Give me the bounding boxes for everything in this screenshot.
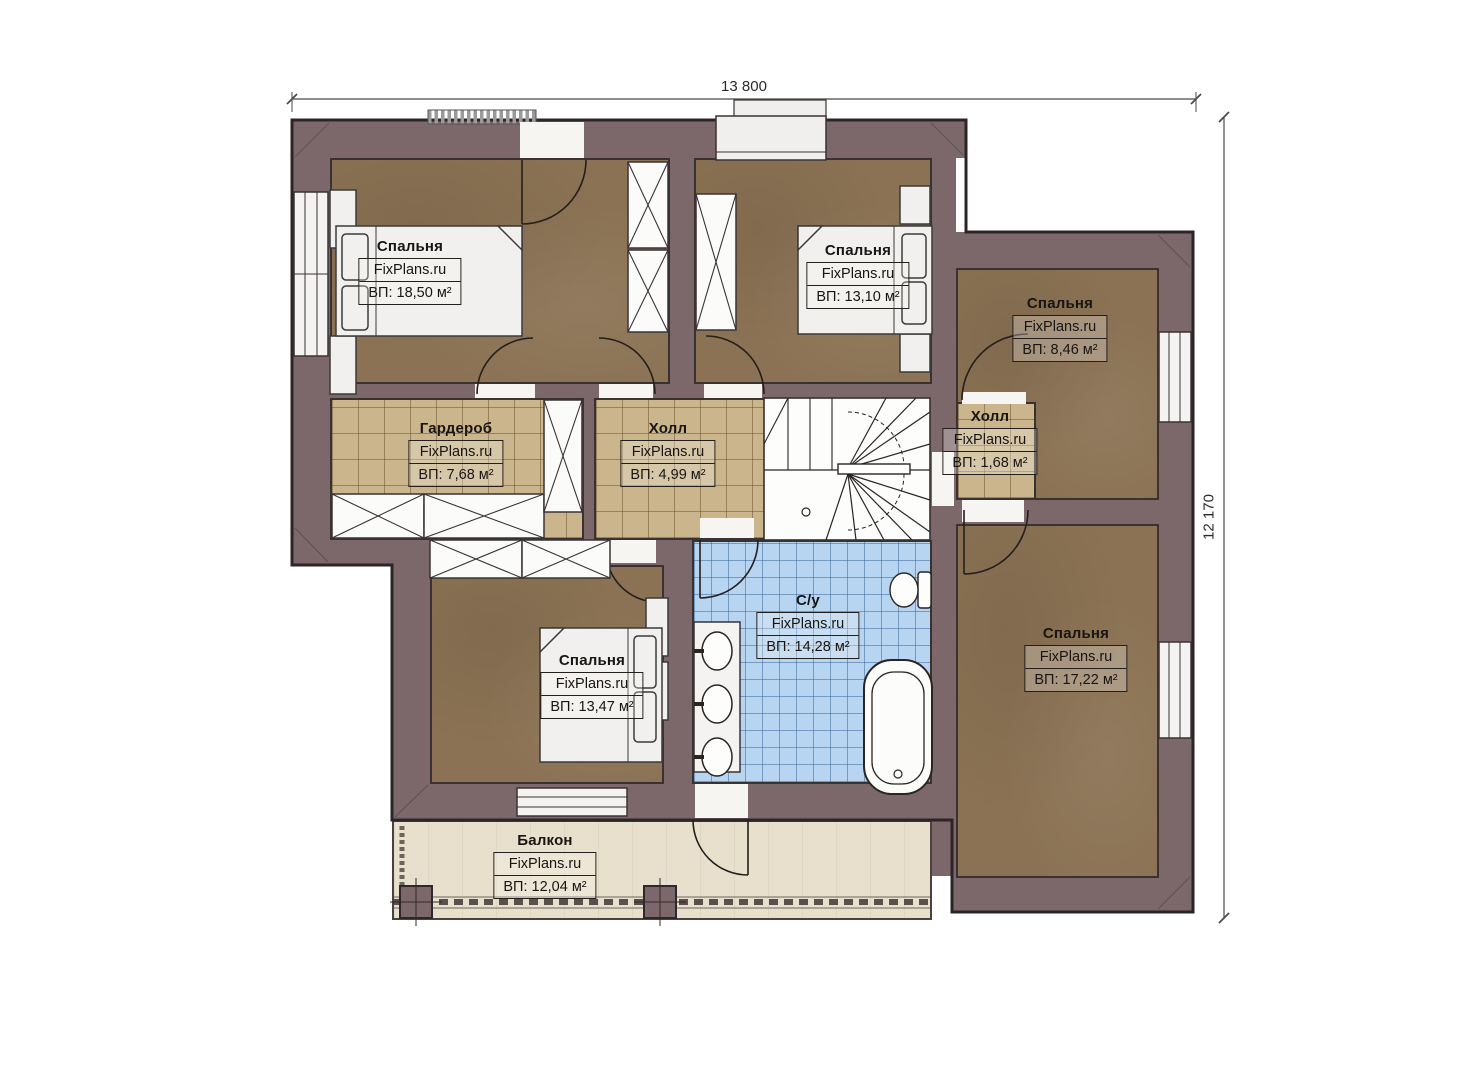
stair-newel [802,508,810,516]
room-label-bedroom-right: Спальня FixPlans.ru ВП: 17,22 м² [1024,625,1127,692]
room-label-bedroom-bottom-left: Спальня FixPlans.ru ВП: 13,47 м² [540,652,643,719]
room-name: Балкон [517,832,572,849]
wall-left-upper [292,120,330,565]
room-info-box: FixPlans.ru ВП: 8,46 м² [1012,315,1107,362]
room-area: ВП: 7,68 м² [409,463,502,486]
wall-top [292,120,966,158]
wall-right-block-bottom [952,876,1193,912]
room-area: ВП: 12,04 м² [494,875,595,898]
floor-plan: 13 800 12 170 Спальня FixPlans.ru ВП: 18… [0,0,1473,1080]
floor-bedroom-right [956,524,1159,878]
room-area: ВП: 13,10 м² [807,285,908,308]
room-name: Холл [971,408,1009,425]
room-name: Спальня [377,238,443,255]
room-brand: FixPlans.ru [541,673,642,695]
room-info-box: FixPlans.ru ВП: 13,10 м² [806,262,909,309]
room-brand: FixPlans.ru [943,429,1036,451]
wall-right-block-right [1157,232,1193,912]
room-info-box: FixPlans.ru ВП: 12,04 м² [493,852,596,899]
room-info-box: FixPlans.ru ВП: 13,47 м² [540,672,643,719]
floor-balcony [392,820,932,920]
room-label-balcony: Балкон FixPlans.ru ВП: 12,04 м² [493,832,596,899]
room-name: Спальня [559,652,625,669]
stair-landing [838,464,910,474]
room-brand: FixPlans.ru [807,263,908,285]
room-brand: FixPlans.ru [359,259,460,281]
room-brand: FixPlans.ru [621,441,714,463]
room-brand: FixPlans.ru [494,853,595,875]
room-brand: FixPlans.ru [1013,316,1106,338]
dimension-width-label: 13 800 [721,78,767,95]
room-area: ВП: 13,47 м² [541,695,642,718]
room-area: ВП: 4,99 м² [621,463,714,486]
room-area: ВП: 8,46 м² [1013,338,1106,361]
wall-mid-row-bottom [430,538,682,565]
room-name: Спальня [1027,295,1093,312]
dimension-height-label: 12 170 [1201,494,1218,540]
room-label-bedroom-top-middle: Спальня FixPlans.ru ВП: 13,10 м² [806,242,909,309]
dimension-top [287,92,1201,112]
room-label-hall-main: Холл FixPlans.ru ВП: 4,99 м² [620,420,715,487]
room-label-wardrobe: Гардероб FixPlans.ru ВП: 7,68 м² [408,420,503,487]
room-name: Холл [649,420,687,437]
room-info-box: FixPlans.ru ВП: 17,22 м² [1024,645,1127,692]
room-brand: FixPlans.ru [757,613,858,635]
room-label-bedroom-top-left: Спальня FixPlans.ru ВП: 18,50 м² [358,238,461,305]
room-label-hall-small: Холл FixPlans.ru ВП: 1,68 м² [942,408,1037,475]
room-brand: FixPlans.ru [1025,646,1126,668]
room-name: Спальня [1043,625,1109,642]
room-name: Гардероб [420,420,493,437]
room-area: ВП: 18,50 м² [359,281,460,304]
dimension-right [1217,112,1237,923]
room-area: ВП: 17,22 м² [1025,668,1126,691]
room-brand: FixPlans.ru [409,441,502,463]
room-area: ВП: 1,68 м² [943,451,1036,474]
room-info-box: FixPlans.ru ВП: 1,68 м² [942,428,1037,475]
wall-bottom-main [392,782,952,820]
wall-right-block-mid [952,498,1157,524]
room-label-bathroom: С/у FixPlans.ru ВП: 14,28 м² [756,592,859,659]
room-label-bedroom-top-right: Спальня FixPlans.ru ВП: 8,46 м² [1012,295,1107,362]
room-info-box: FixPlans.ru ВП: 4,99 м² [620,440,715,487]
room-name: Спальня [825,242,891,259]
room-info-box: FixPlans.ru ВП: 18,50 м² [358,258,461,305]
room-info-box: FixPlans.ru ВП: 7,68 м² [408,440,503,487]
room-area: ВП: 14,28 м² [757,635,858,658]
room-name: С/у [796,592,820,609]
wall-bedroom-bathroom [662,538,692,784]
room-info-box: FixPlans.ru ВП: 14,28 м² [756,612,859,659]
wall-closet-divider [668,120,694,382]
floor-bathroom [692,540,932,784]
